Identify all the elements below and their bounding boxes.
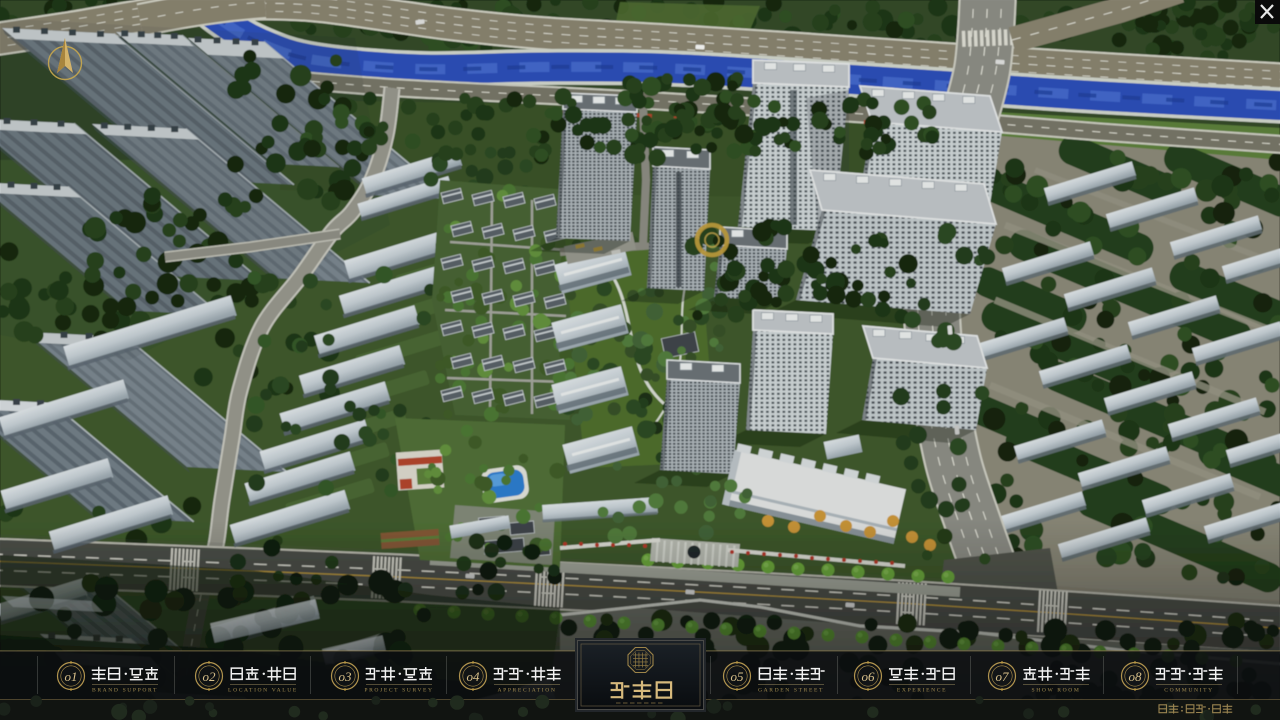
svg-text:EXPERIENCE: EXPERIENCE [897, 688, 947, 694]
svg-text:o3: o3 [339, 669, 353, 684]
svg-text:o5: o5 [731, 669, 745, 684]
svg-text:o2: o2 [203, 669, 217, 684]
svg-text:o6: o6 [862, 669, 876, 684]
svg-text:APPRECIATION: APPRECIATION [498, 688, 557, 694]
svg-text:o7: o7 [996, 669, 1010, 684]
svg-text:o1: o1 [65, 669, 78, 684]
svg-text:o4: o4 [467, 669, 481, 684]
svg-text:SHOW ROOM: SHOW ROOM [1032, 688, 1081, 694]
svg-text:PROJECT SURVEY: PROJECT SURVEY [364, 688, 433, 694]
svg-text:o8: o8 [1129, 669, 1143, 684]
svg-text:GARDEN STREET: GARDEN STREET [758, 688, 824, 694]
svg-text:BRAND SUPPORT: BRAND SUPPORT [92, 688, 158, 694]
svg-text:LOCATION VALUE: LOCATION VALUE [228, 688, 298, 694]
svg-text:COMMUNITY: COMMUNITY [1164, 688, 1214, 694]
